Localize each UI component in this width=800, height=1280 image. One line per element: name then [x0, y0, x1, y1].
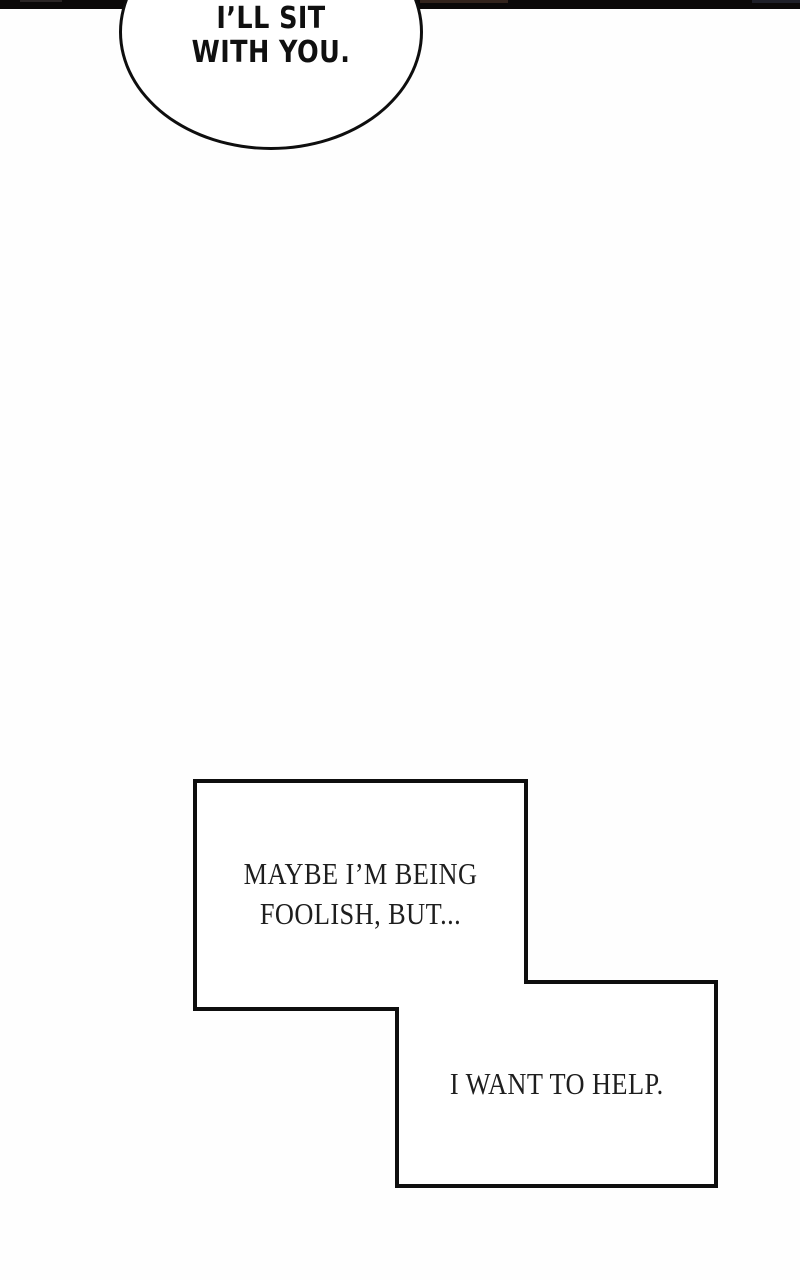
speech-bubble-line-1: I’LL SIT — [142, 2, 400, 36]
speech-bubble-line-2: WITH YOU. — [142, 36, 400, 70]
caption-box-2: I WANT TO HELP. — [399, 984, 714, 1184]
comic-page: I’LL SIT WITH YOU. MAYBE I’M BEING FOOLI… — [0, 0, 800, 1280]
caption-1-line-1: MAYBE I’M BEING — [244, 854, 478, 894]
speech-bubble-text: I’LL SIT WITH YOU. — [119, 2, 423, 70]
caption-1-line-2: FOOLISH, BUT... — [244, 894, 478, 934]
caption-2-line-1: I WANT TO HELP. — [450, 1064, 664, 1104]
caption-box-1: MAYBE I’M BEING FOOLISH, BUT... — [197, 783, 524, 1005]
